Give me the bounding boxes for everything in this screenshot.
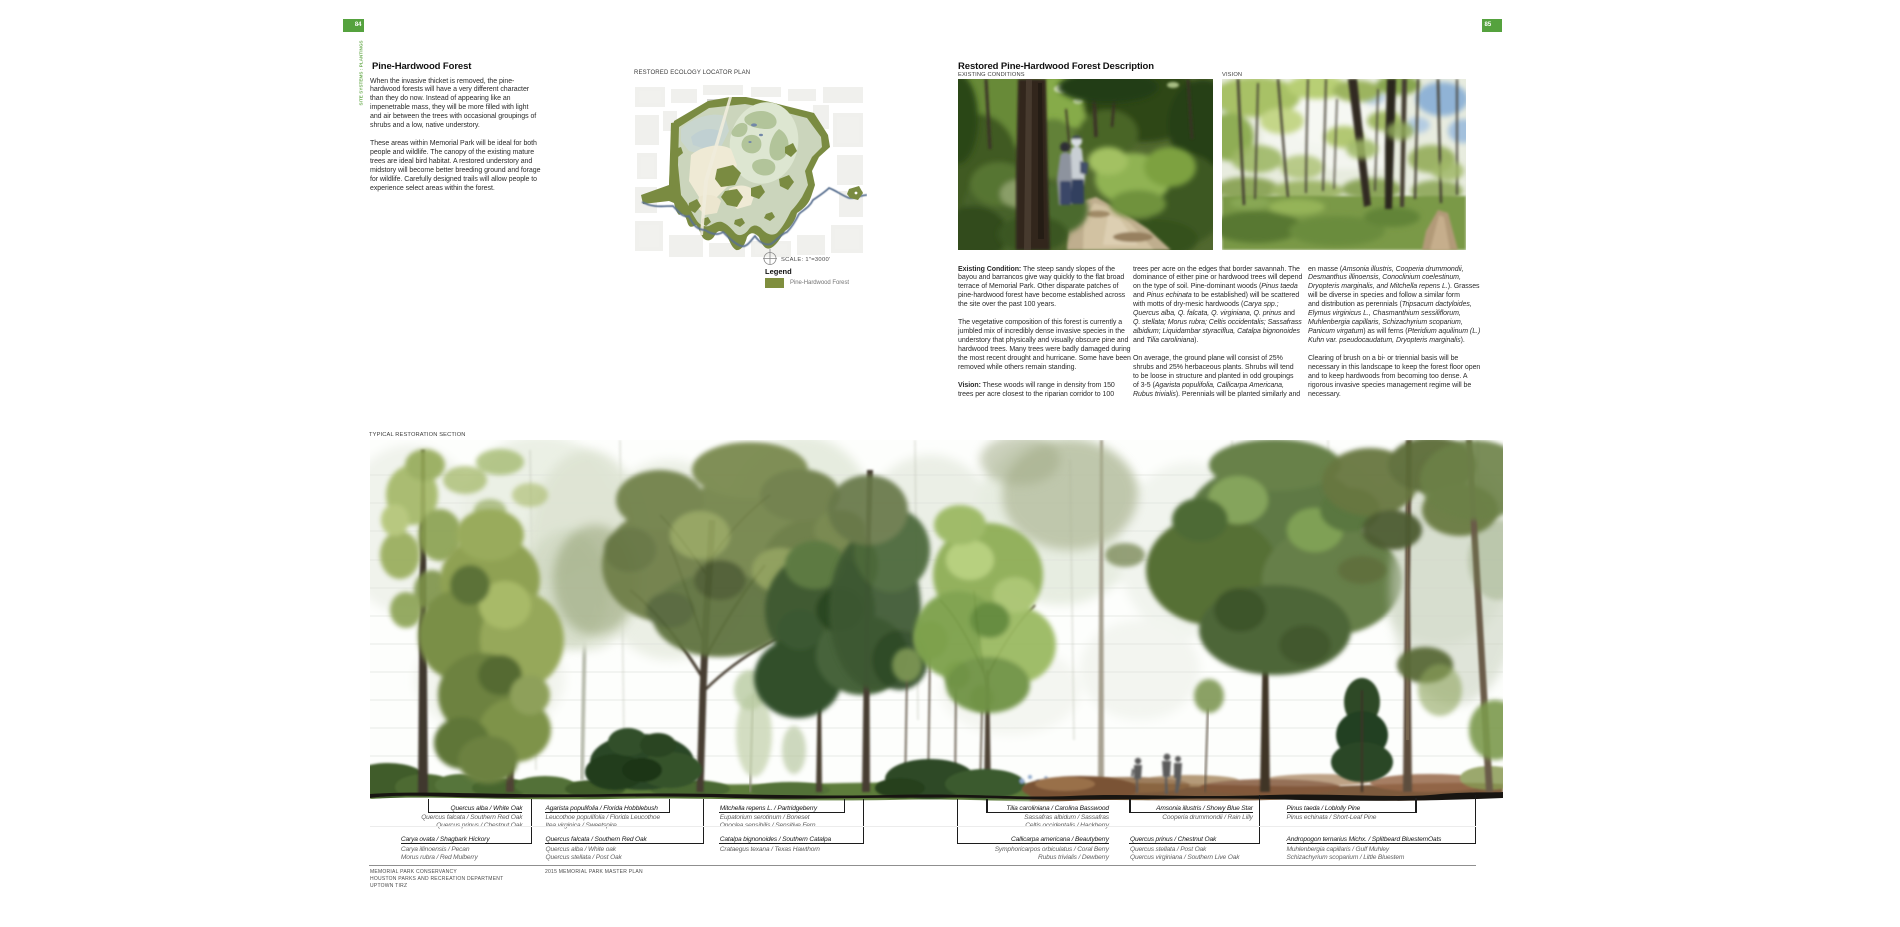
svg-text:SCALE: 1"=3000': SCALE: 1"=3000' <box>781 257 830 263</box>
